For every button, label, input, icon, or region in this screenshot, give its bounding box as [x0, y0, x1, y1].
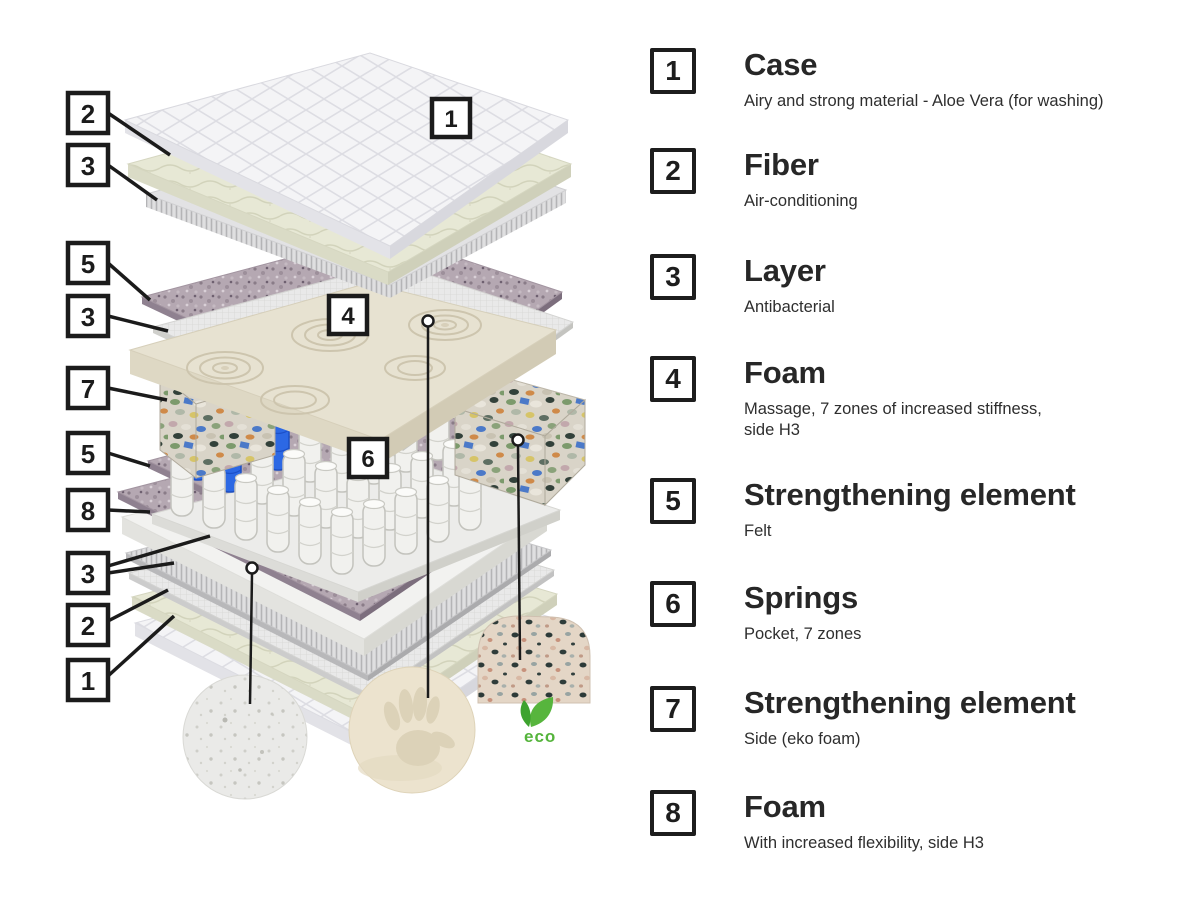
legend-desc-strengthening-felt: Felt	[744, 521, 1076, 542]
legend-title-foam-massage: Foam	[744, 356, 1042, 390]
legend-item-strengthening-side: 7 Strengthening element Side (eko foam)	[650, 686, 1076, 750]
legend-number-7: 7	[650, 686, 696, 732]
legend-desc-strengthening-side: Side (eko foam)	[744, 729, 1076, 750]
legend-item-strengthening-felt: 5 Strengthening element Felt	[650, 478, 1076, 542]
legend-title-foam-flex: Foam	[744, 790, 984, 824]
legend-number-3: 3	[650, 254, 696, 300]
legend-number-8: 8	[650, 790, 696, 836]
legend-desc-springs: Pocket, 7 zones	[744, 624, 861, 645]
legend-title-layer: Layer	[744, 254, 835, 288]
legend-desc-fiber: Air-conditioning	[744, 191, 858, 212]
legend: 1 Case Airy and strong material - Aloe V…	[0, 0, 1200, 899]
legend-item-springs: 6 Springs Pocket, 7 zones	[650, 581, 861, 645]
legend-item-layer: 3 Layer Antibacterial	[650, 254, 835, 318]
legend-number-5: 5	[650, 478, 696, 524]
legend-title-strengthening-side: Strengthening element	[744, 686, 1076, 720]
legend-item-case: 1 Case Airy and strong material - Aloe V…	[650, 48, 1104, 112]
legend-number-1: 1	[650, 48, 696, 94]
legend-number-4: 4	[650, 356, 696, 402]
legend-number-6: 6	[650, 581, 696, 627]
legend-item-foam-massage: 4 Foam Massage, 7 zones of increased sti…	[650, 356, 1042, 441]
legend-item-foam-flex: 8 Foam With increased flexibility, side …	[650, 790, 984, 854]
legend-number-2: 2	[650, 148, 696, 194]
legend-title-fiber: Fiber	[744, 148, 858, 182]
legend-title-springs: Springs	[744, 581, 861, 615]
legend-desc-foam-flex: With increased flexibility, side H3	[744, 833, 984, 854]
legend-desc-layer: Antibacterial	[744, 297, 835, 318]
legend-item-fiber: 2 Fiber Air-conditioning	[650, 148, 858, 212]
legend-desc-case: Airy and strong material - Aloe Vera (fo…	[744, 91, 1104, 112]
mattress-infographic: eco 2 3 5	[0, 0, 1200, 899]
legend-title-case: Case	[744, 48, 1104, 82]
legend-title-strengthening-felt: Strengthening element	[744, 478, 1076, 512]
legend-desc-foam-massage: Massage, 7 zones of increased stiffness,…	[744, 399, 1042, 441]
